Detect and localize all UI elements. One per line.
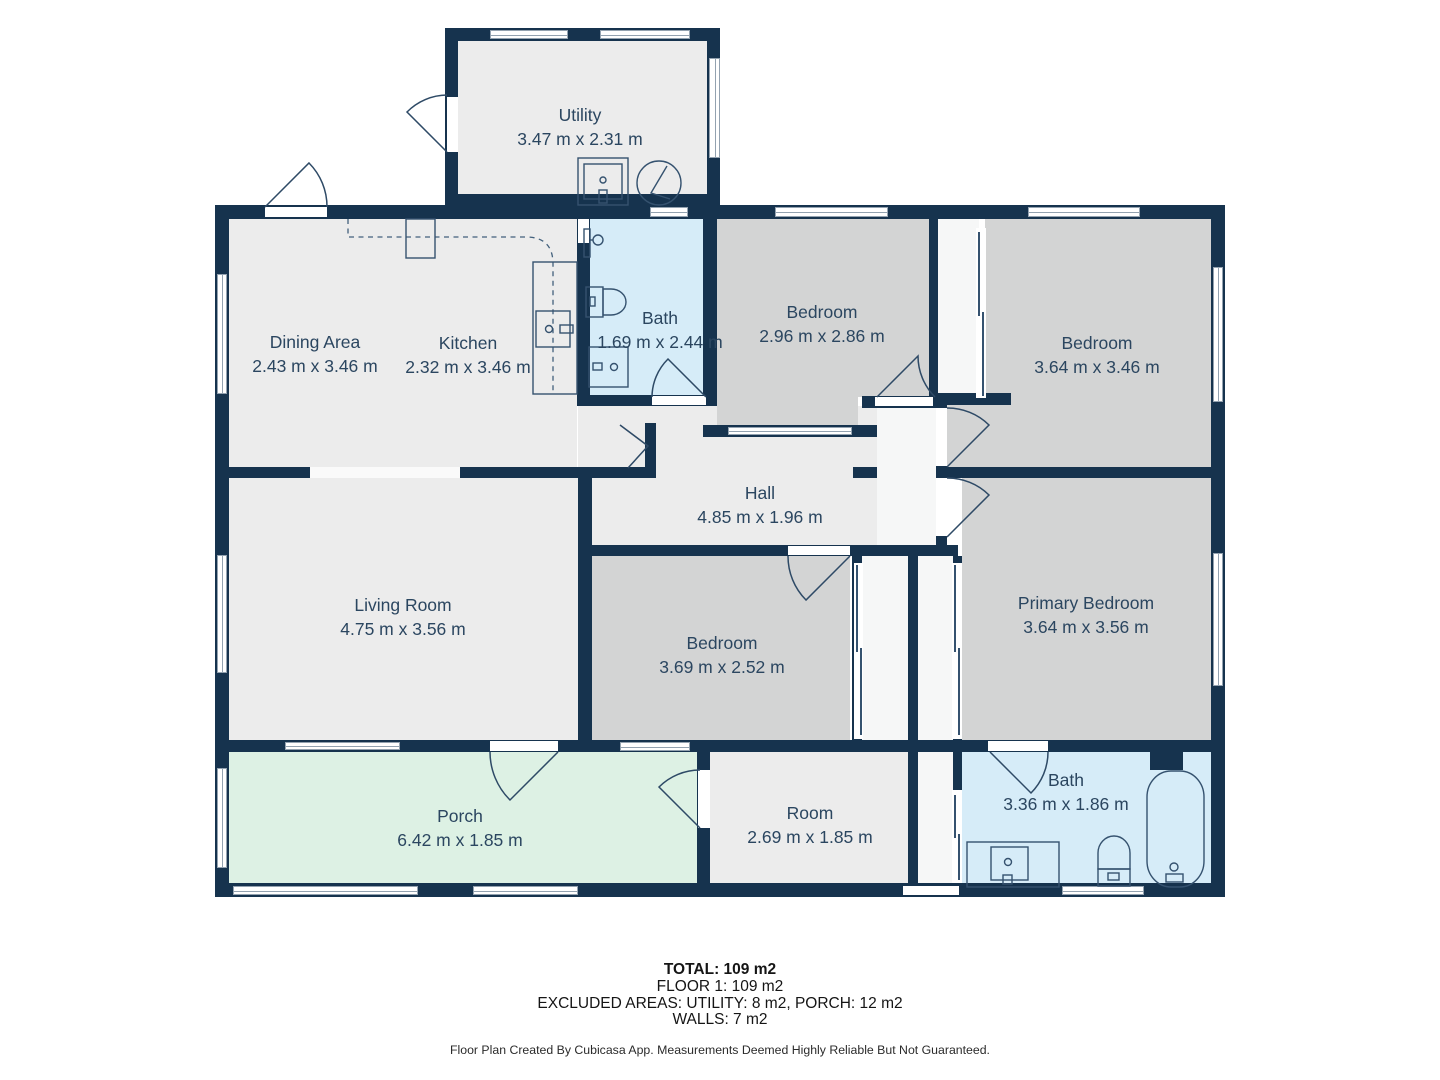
window (728, 427, 852, 435)
door-gap (265, 207, 327, 217)
door-gap (988, 741, 1048, 751)
room-name: Bedroom (759, 300, 884, 324)
wall-segment (858, 425, 877, 437)
room-dims: 3.47 m x 2.31 m (517, 127, 642, 151)
room-name: Room (747, 801, 872, 825)
room-dims: 2.43 m x 3.46 m (252, 354, 377, 378)
floor-area-text: FLOOR 1: 109 m2 (0, 979, 1440, 996)
room-label-primary: Primary Bedroom 3.64 m x 3.56 m (1018, 591, 1154, 639)
room-floor-bedroom1-ext (717, 393, 858, 425)
door-gap (490, 741, 558, 751)
wall-segment (577, 219, 590, 406)
room-floor-bedroom2-vestibule (947, 405, 1011, 467)
window (217, 555, 227, 673)
door-arc-utility (407, 95, 447, 152)
room-dims: 3.64 m x 3.46 m (1034, 355, 1159, 379)
walls-area-text: WALLS: 7 m2 (0, 1012, 1440, 1029)
sliding-door (976, 228, 986, 398)
excluded-areas-text: EXCLUDED AREAS: UTILITY: 8 m2, PORCH: 12… (0, 996, 1440, 1013)
wall-segment (578, 467, 592, 748)
room-name: Primary Bedroom (1018, 591, 1154, 615)
room-name: Utility (517, 103, 642, 127)
door-gap (447, 97, 458, 152)
window (650, 207, 688, 217)
window (233, 886, 418, 895)
room-dims: 1.69 m x 2.44 m (597, 330, 722, 354)
room-label-bedroom2: Bedroom 3.64 m x 3.46 m (1034, 331, 1159, 379)
room-name: Living Room (340, 593, 465, 617)
room-name: Bath (1003, 768, 1128, 792)
room-floor-closet-top (938, 219, 979, 393)
wall-segment (578, 545, 958, 556)
wall-segment (929, 219, 938, 397)
window (620, 742, 690, 751)
window (217, 768, 227, 868)
room-dims: 2.96 m x 2.86 m (759, 324, 884, 348)
room-label-bath1: Bath 1.69 m x 2.44 m (597, 306, 722, 354)
window (1028, 207, 1140, 217)
room-dims: 3.36 m x 1.86 m (1003, 792, 1128, 816)
window (1213, 553, 1223, 686)
room-label-dining: Dining Area 2.43 m x 3.46 m (252, 330, 377, 378)
room-name: Porch (397, 804, 522, 828)
room-dims: 2.32 m x 3.46 m (405, 355, 530, 379)
room-floor-closet1 (862, 556, 908, 740)
room-dims: 3.64 m x 3.56 m (1018, 615, 1154, 639)
door-arc-dining-exterior (265, 163, 327, 207)
total-area-text: TOTAL: 109 m2 (0, 962, 1440, 979)
room-dims: 6.42 m x 1.85 m (397, 828, 522, 852)
door-gap (698, 770, 710, 828)
door-gap (936, 408, 947, 466)
room-label-hall: Hall 4.85 m x 1.96 m (697, 481, 822, 529)
cased-opening (310, 467, 460, 478)
window (1213, 267, 1223, 402)
room-label-porch: Porch 6.42 m x 1.85 m (397, 804, 522, 852)
room-dims: 4.85 m x 1.96 m (697, 505, 822, 529)
door-gap (652, 396, 706, 405)
room-name: Bedroom (1034, 331, 1159, 355)
door-gap (788, 546, 850, 555)
window (285, 742, 400, 750)
room-name: Dining Area (252, 330, 377, 354)
room-name: Hall (697, 481, 822, 505)
sliding-door (952, 563, 962, 739)
window (1062, 886, 1144, 895)
door-gap (936, 478, 947, 536)
wall-segment (853, 467, 877, 478)
window (490, 30, 568, 39)
room-label-bedroom1: Bedroom 2.96 m x 2.86 m (759, 300, 884, 348)
window (709, 58, 720, 158)
room-floor-strip (918, 752, 953, 883)
room-label-room: Room 2.69 m x 1.85 m (747, 801, 872, 849)
area-summary: TOTAL: 109 m2 FLOOR 1: 109 m2 EXCLUDED A… (0, 962, 1440, 1029)
disclaimer-text: Floor Plan Created By Cubicasa App. Meas… (0, 1043, 1440, 1057)
door-gap (875, 397, 933, 406)
wall-segment (936, 393, 1011, 405)
room-dims: 4.75 m x 3.56 m (340, 617, 465, 641)
sliding-door (952, 790, 962, 883)
room-label-bedroom3: Bedroom 3.69 m x 2.52 m (659, 631, 784, 679)
sliding-door (854, 563, 863, 739)
window (217, 274, 227, 394)
room-name: Bedroom (659, 631, 784, 655)
window (775, 207, 888, 217)
door-gap (578, 219, 589, 243)
room-label-living: Living Room 4.75 m x 3.56 m (340, 593, 465, 641)
room-name: Bath (597, 306, 722, 330)
room-dims: 2.69 m x 1.85 m (747, 825, 872, 849)
room-label-kitchen: Kitchen 2.32 m x 3.46 m (405, 331, 530, 379)
floor-plan-canvas: Utility 3.47 m x 2.31 m Dining Area 2.43… (0, 0, 1440, 1080)
wall-segment (947, 467, 1211, 478)
door-gap (903, 886, 959, 895)
room-floor-landing (877, 404, 936, 545)
room-floor-closet2 (918, 556, 953, 740)
wall-segment (460, 467, 656, 478)
wall-segment (215, 467, 310, 478)
room-name: Kitchen (405, 331, 530, 355)
window (600, 30, 690, 39)
room-label-bath2: Bath 3.36 m x 1.86 m (1003, 768, 1128, 816)
room-label-utility: Utility 3.47 m x 2.31 m (517, 103, 642, 151)
room-dims: 3.69 m x 2.52 m (659, 655, 784, 679)
wall-segment (908, 545, 918, 890)
window (473, 886, 578, 895)
